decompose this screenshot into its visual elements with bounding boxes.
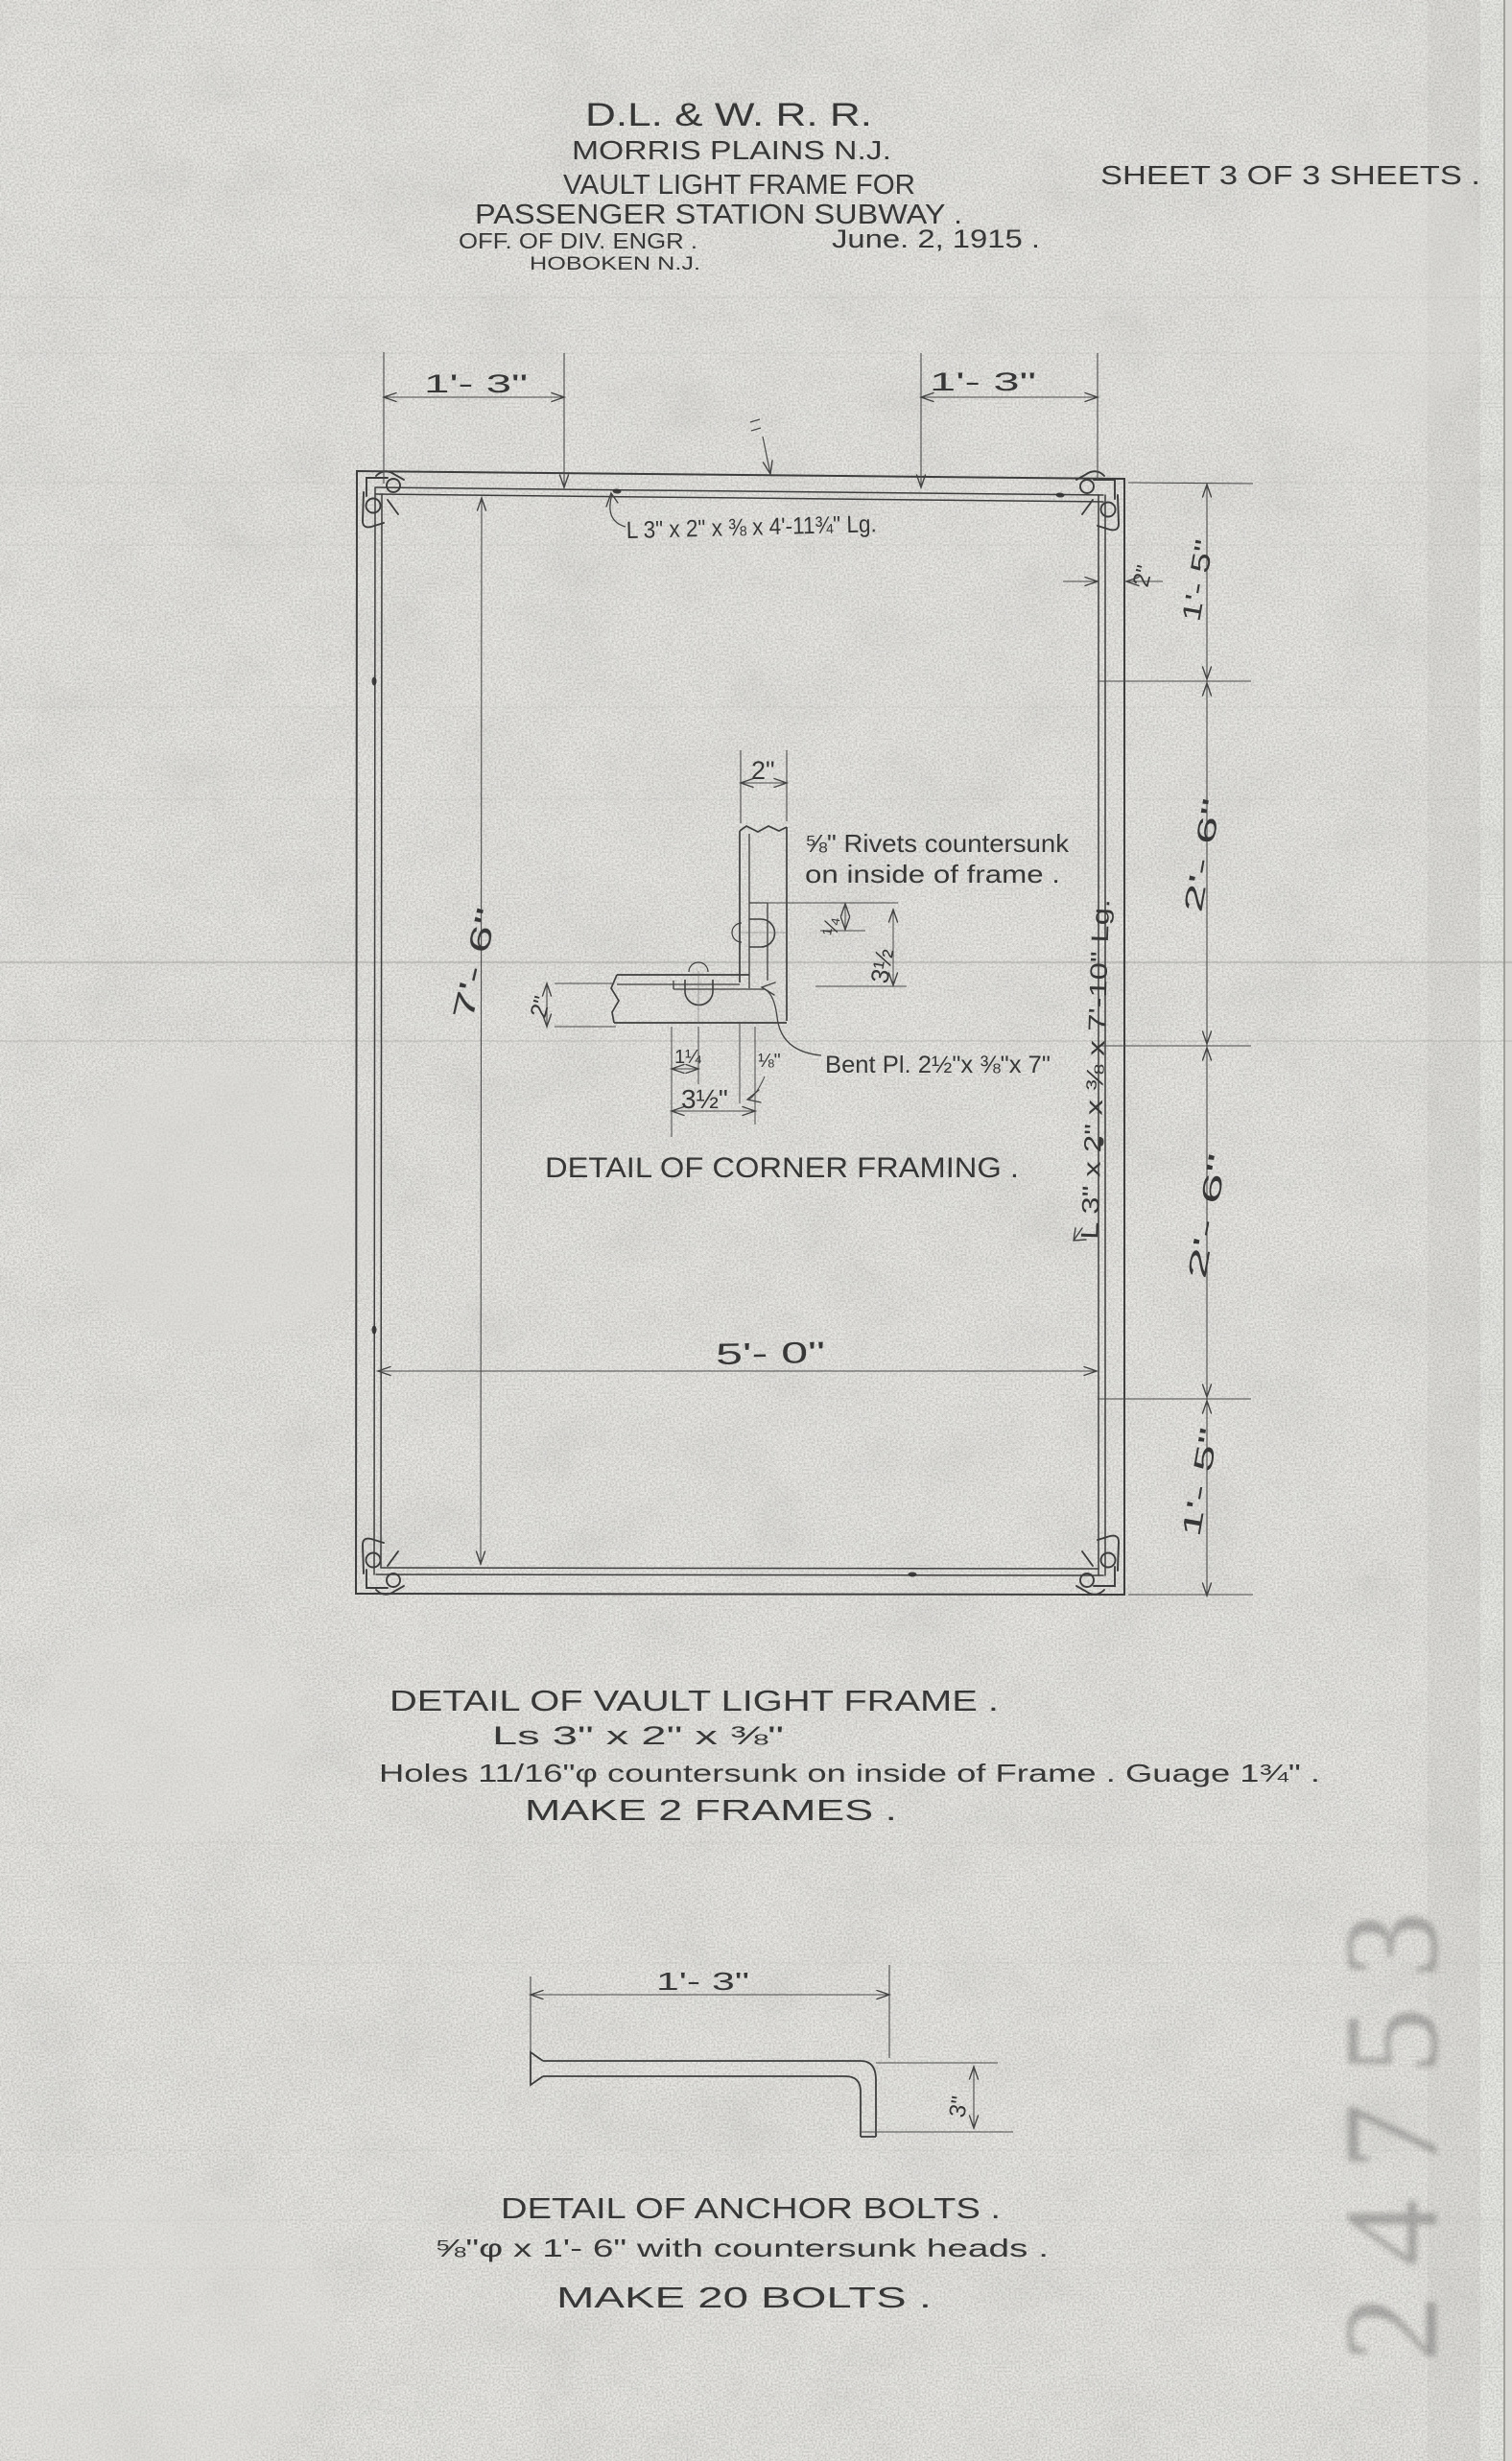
- svg-text:1¼: 1¼: [674, 1047, 701, 1068]
- svg-text:Bent Pl. 2½"x ⅜"x 7": Bent Pl. 2½"x ⅜"x 7": [825, 1052, 1051, 1078]
- svg-text:Holes 11/16"φ countersunk on i: Holes 11/16"φ countersunk on inside of F…: [379, 1759, 1320, 1787]
- svg-text:1'- 3": 1'- 3": [656, 1967, 749, 1996]
- svg-text:⅛": ⅛": [758, 1051, 781, 1072]
- svg-text:June. 2, 1915 .: June. 2, 1915 .: [832, 225, 1040, 253]
- svg-text:3½: 3½: [864, 946, 899, 985]
- svg-text:on inside of frame .: on inside of frame .: [805, 860, 1060, 888]
- svg-text:1'- 3": 1'- 3": [930, 367, 1036, 396]
- svg-text:D.L. & W. R. R.: D.L. & W. R. R.: [585, 97, 872, 133]
- svg-text:1'- 3": 1'- 3": [424, 369, 528, 398]
- svg-text:⅝"φ x 1'- 6" with countersunk: ⅝"φ x 1'- 6" with countersunk heads .: [435, 2234, 1049, 2262]
- svg-text:MORRIS PLAINS N.J.: MORRIS PLAINS N.J.: [572, 135, 891, 165]
- svg-text:2": 2": [751, 756, 775, 785]
- svg-text:DETAIL OF ANCHOR BOLTS .: DETAIL OF ANCHOR BOLTS .: [501, 2191, 1001, 2225]
- svg-text:24753: 24753: [1317, 1882, 1466, 2362]
- svg-text:3½": 3½": [681, 1084, 728, 1114]
- svg-text:MAKE 2 FRAMES .: MAKE 2 FRAMES .: [525, 1793, 897, 1827]
- svg-text:5'- 0": 5'- 0": [716, 1336, 826, 1371]
- svg-text:⅝" Rivets countersunk: ⅝" Rivets countersunk: [805, 829, 1070, 858]
- svg-text:DETAIL OF VAULT LIGHT FRAME .: DETAIL OF VAULT LIGHT FRAME .: [390, 1684, 999, 1717]
- svg-text:3": 3": [944, 2094, 973, 2119]
- svg-text:DETAIL OF CORNER FRAMING .: DETAIL OF CORNER FRAMING .: [545, 1152, 1019, 1184]
- svg-text:MAKE 20 BOLTS .: MAKE 20 BOLTS .: [556, 2281, 932, 2314]
- svg-text:SHEET 3 OF 3 SHEETS .: SHEET 3 OF 3 SHEETS .: [1100, 160, 1480, 190]
- svg-text:Ls 3" x 2" x ⅜": Ls 3" x 2" x ⅜": [492, 1721, 784, 1750]
- svg-text:OFF. OF DIV. ENGR .: OFF. OF DIV. ENGR .: [459, 228, 697, 253]
- svg-text:VAULT LIGHT FRAME FOR: VAULT LIGHT FRAME FOR: [563, 170, 915, 201]
- svg-text:HOBOKEN N.J.: HOBOKEN N.J.: [530, 254, 700, 274]
